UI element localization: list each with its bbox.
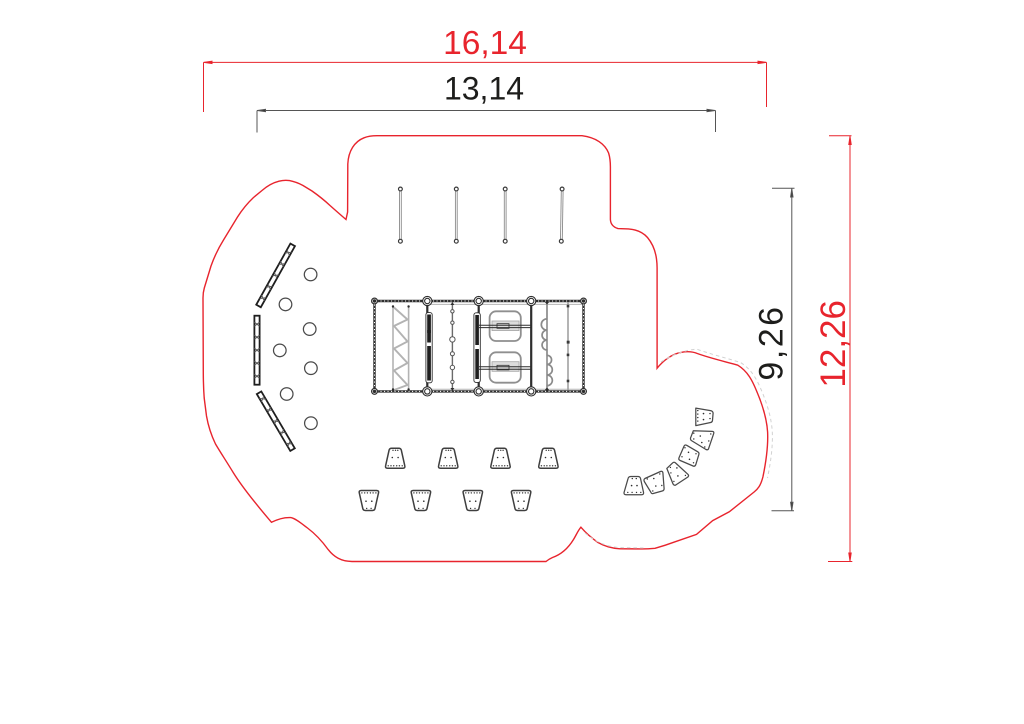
svg-text:16,14: 16,14 [443,25,527,62]
svg-text:12,26: 12,26 [814,300,853,388]
svg-text:9,26: 9,26 [753,304,791,380]
svg-text:13,14: 13,14 [444,71,524,107]
